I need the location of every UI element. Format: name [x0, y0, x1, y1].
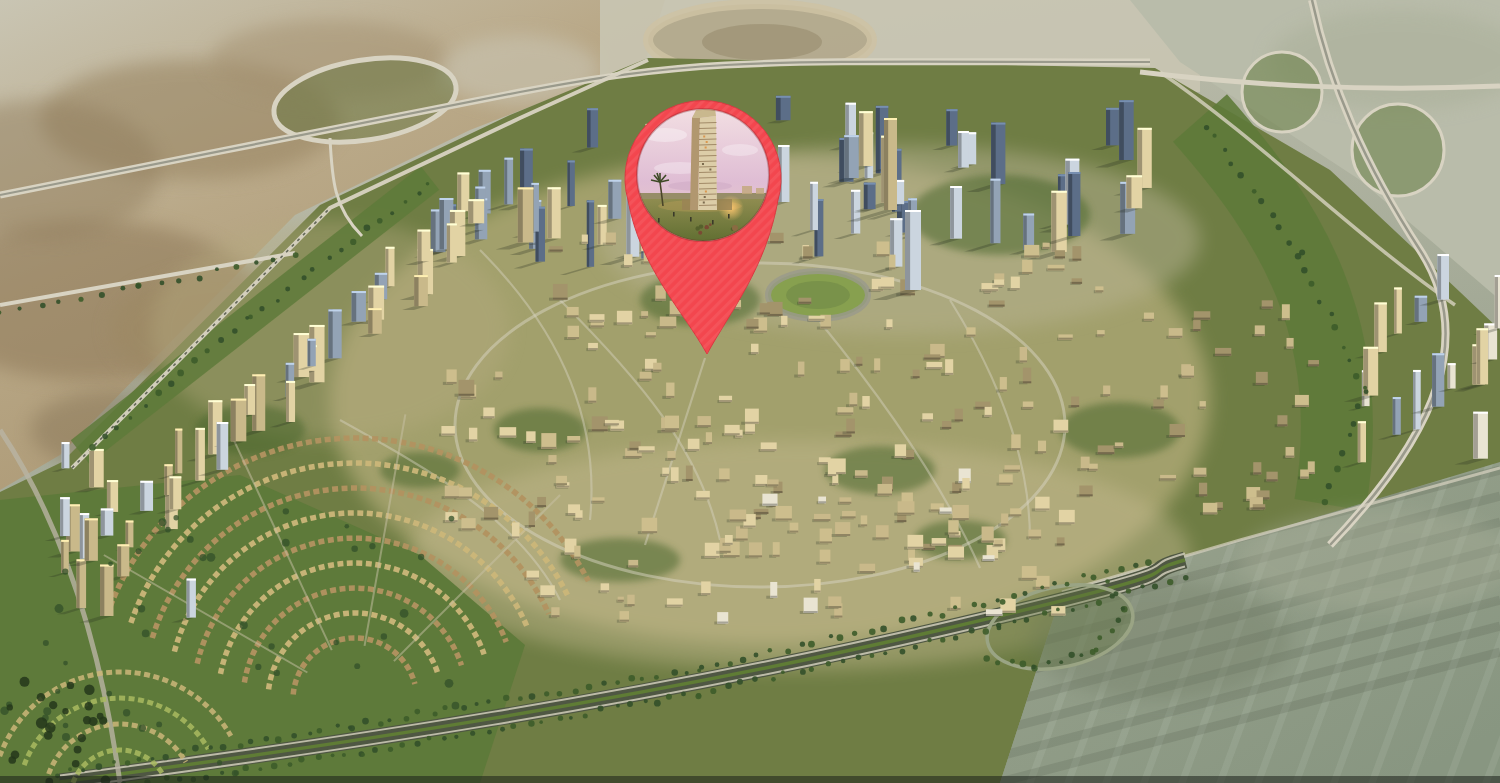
render-bottom-edge: [0, 776, 1500, 783]
central-park: [768, 271, 868, 319]
city-render: [0, 0, 1500, 783]
aerial-map: [0, 0, 1500, 783]
